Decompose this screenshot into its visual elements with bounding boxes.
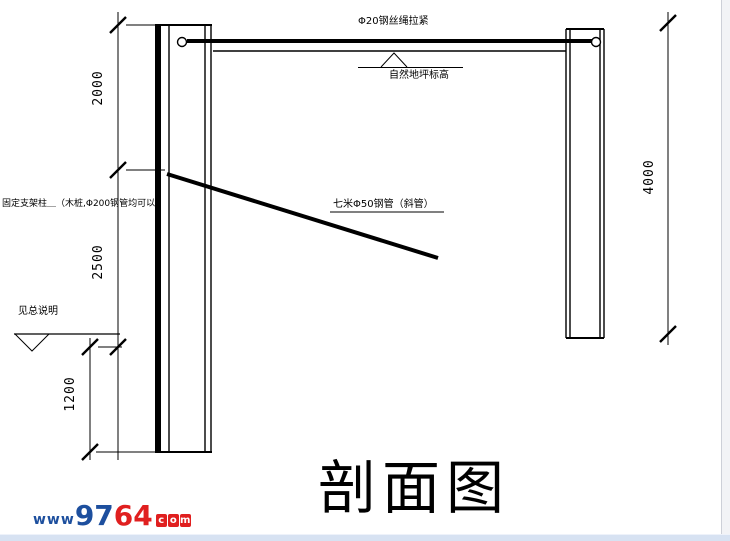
dimension-1200: 1200	[64, 364, 78, 424]
window-bottom-edge	[0, 534, 730, 541]
watermark-letter-o: o	[168, 514, 179, 527]
window-right-edge	[721, 0, 730, 535]
watermark-letter-c: c	[156, 514, 167, 527]
watermark-www-text: www	[33, 513, 75, 527]
left-post	[155, 25, 212, 452]
right-post	[566, 29, 604, 338]
diagonal-brace-line	[167, 174, 438, 258]
dimension-2500: 2500	[92, 232, 106, 292]
drawing-title: 剖面图	[318, 460, 510, 518]
watermark-com-blocks: c o m	[155, 514, 191, 527]
top-elevation-label: 自然地坪标高	[389, 70, 449, 81]
watermark-digits-blue: 97	[75, 502, 114, 530]
watermark-digits-red: 64	[114, 502, 153, 530]
dimension-line-right	[660, 12, 676, 345]
cad-viewer-canvas: Φ20钢丝绳拉紧 自然地坪标高 七米Φ50钢管（斜管） 固定支架柱＿（木桩,Φ2…	[0, 0, 730, 541]
wire-rope-pin-right	[592, 38, 601, 47]
dimension-4000: 4000	[643, 147, 657, 207]
elevation-marker-top	[358, 53, 463, 68]
post-note-label: 固定支架柱＿（木桩,Φ200钢管均可以）	[2, 200, 164, 210]
wire-rope-pin-left	[178, 38, 187, 47]
dimension-2000: 2000	[92, 58, 106, 118]
elevation-marker-ground	[14, 334, 120, 351]
dimension-line-left-outer	[98, 12, 165, 460]
watermark-logo: www 97 64 c o m	[33, 502, 191, 530]
watermark-letter-m: m	[180, 514, 191, 527]
wire-rope-label: Φ20钢丝绳拉紧	[358, 16, 429, 27]
ground-note-label: 见总说明	[18, 306, 58, 317]
diagonal-brace-label: 七米Φ50钢管（斜管）	[333, 199, 434, 210]
